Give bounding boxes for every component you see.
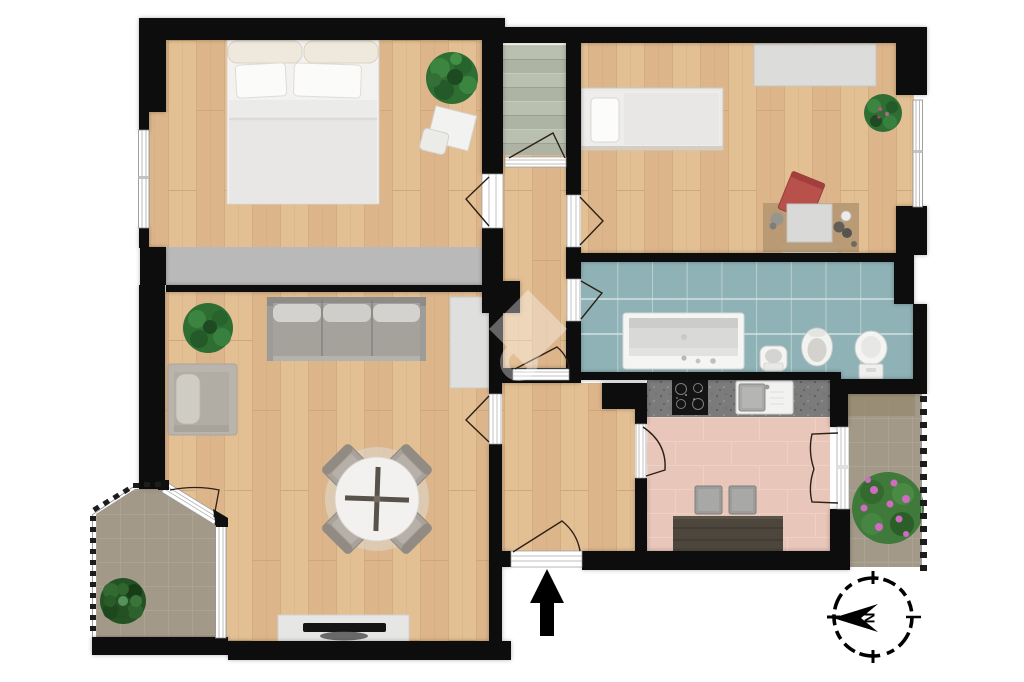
svg-text:N: N (862, 613, 879, 624)
